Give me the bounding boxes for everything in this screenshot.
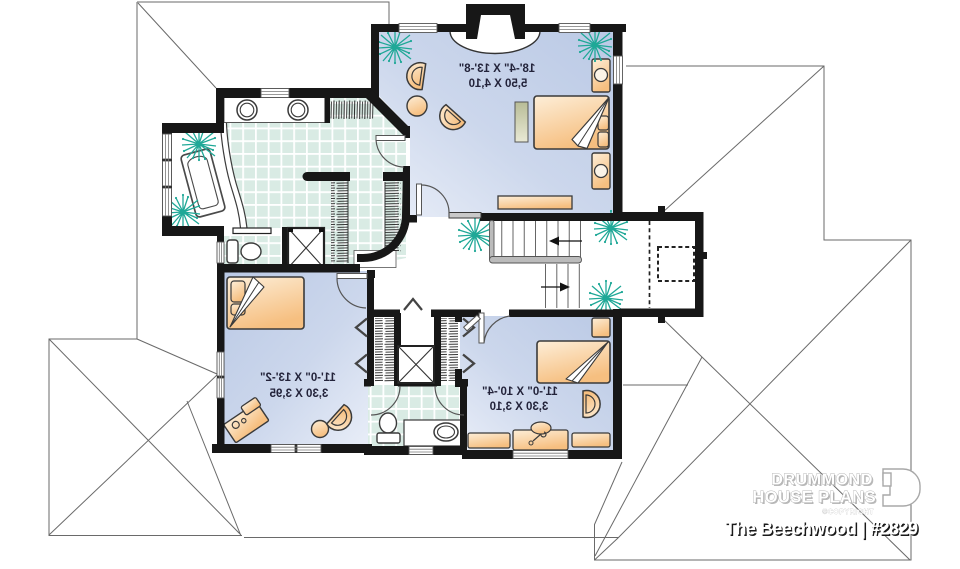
svg-text:5,50 X 4,10: 5,50 X 4,10 [469,78,528,90]
svg-text:3,30 X 3,95: 3,30 X 3,95 [269,388,328,400]
svg-text:11'-0" X 10'-4": 11'-0" X 10'-4" [482,386,558,398]
svg-text:DRUMMOND: DRUMMOND [771,472,873,489]
svg-text:11'-0" X 13'-2": 11'-0" X 13'-2" [260,372,336,384]
svg-text:18'-4" X 13'-8": 18'-4" X 13'-8" [459,63,535,75]
svg-text:3,30 X 3,10: 3,30 X 3,10 [490,401,549,413]
svg-text:The Beechwood | #2829: The Beechwood | #2829 [725,519,918,539]
svg-text:HOUSE PLANS: HOUSE PLANS [752,489,876,507]
svg-text:©COPYRIGHT: ©COPYRIGHT [822,508,874,516]
